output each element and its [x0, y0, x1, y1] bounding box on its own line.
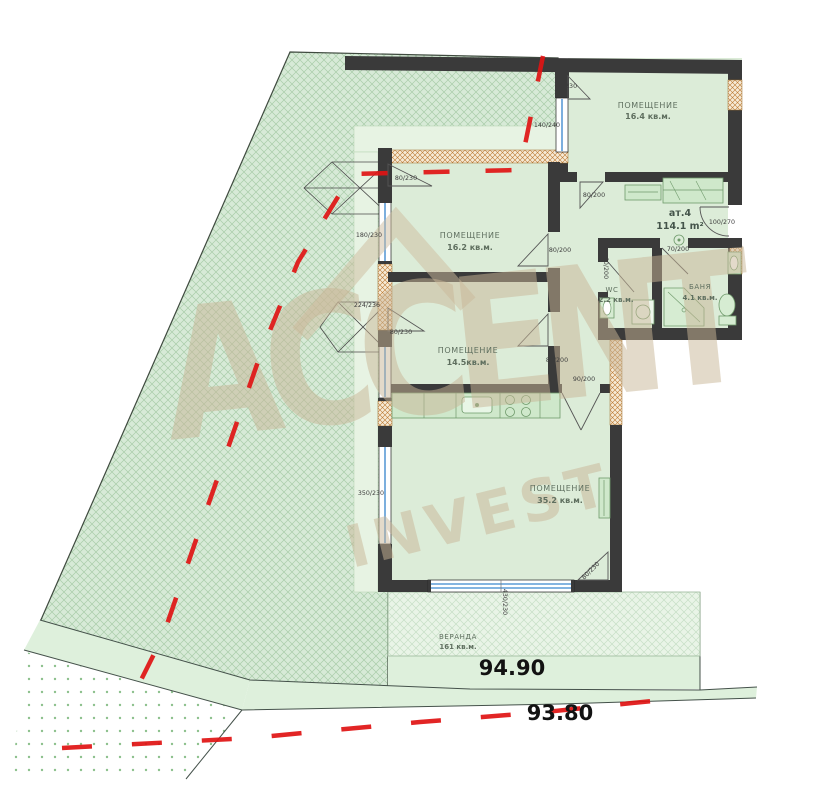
- level-94-90: 94.90: [479, 656, 545, 680]
- wardrobe: [663, 178, 723, 203]
- dim-entry-door: 100/270: [709, 219, 735, 226]
- svg-text:16.2 кв.м.: 16.2 кв.м.: [447, 243, 493, 252]
- dim-top-door: 80/230: [555, 83, 577, 90]
- dim-door-162: 80/200: [549, 247, 571, 254]
- svg-text:ПОМЕЩЕНИЕ: ПОМЕЩЕНИЕ: [438, 346, 499, 355]
- svg-text:4.1 кв.м.: 4.1 кв.м.: [682, 294, 717, 302]
- level-93-80: 93.80: [527, 701, 593, 725]
- svg-text:ПОМЕЩЕНИЕ: ПОМЕЩЕНИЕ: [618, 101, 679, 110]
- svg-text:16.4 кв.м.: 16.4 кв.м.: [625, 112, 671, 121]
- svg-text:WC: WC: [605, 286, 618, 294]
- svg-text:БАНЯ: БАНЯ: [689, 283, 711, 291]
- floor-plan-canvas: ACCENT INVEST ПОМЕЩЕНИЕ 16.4 кв.м. ПОМЕЩ…: [0, 0, 835, 800]
- radiator: [625, 185, 661, 200]
- svg-text:114.1 m²: 114.1 m²: [656, 221, 703, 232]
- dim-door-145: 80/200: [546, 357, 568, 364]
- dim-left-window-1: 180/230: [356, 232, 382, 239]
- svg-text:2.2 кв.м.: 2.2 кв.м.: [598, 296, 633, 304]
- dim-left-pier: 224/236: [354, 302, 380, 309]
- dim-bath-door: 70/200: [667, 246, 689, 253]
- svg-text:ПОМЕЩЕНИЕ: ПОМЕЩЕНИЕ: [440, 231, 501, 240]
- dim-annex1-door: 80/230: [395, 175, 417, 182]
- window-bottom: [428, 580, 574, 592]
- svg-text:161 кв.м.: 161 кв.м.: [439, 643, 476, 651]
- veranda: [388, 592, 700, 656]
- svg-text:ВЕРАНДА: ВЕРАНДА: [439, 633, 477, 641]
- svg-text:35.2 кв.м.: 35.2 кв.м.: [537, 496, 583, 505]
- dim-annex2-door: 80/230: [390, 329, 412, 336]
- dim-kitchen-pass: 90/200: [573, 376, 595, 383]
- dim-bottom-window: 430/230: [501, 589, 508, 615]
- dim-left-window-2: 350/230: [358, 490, 384, 497]
- dim-window-164: 140/240: [534, 122, 560, 129]
- svg-text:ПОМЕЩЕНИЕ: ПОМЕЩЕНИЕ: [530, 484, 591, 493]
- svg-text:14.5кв.м.: 14.5кв.м.: [447, 358, 490, 367]
- floor-plan-page: ACCENT INVEST ПОМЕЩЕНИЕ 16.4 кв.м. ПОМЕЩ…: [0, 0, 835, 800]
- dim-door-164: 80/200: [583, 192, 605, 199]
- dim-wc-door: 60/200: [602, 257, 609, 279]
- svg-text:ат.4: ат.4: [669, 208, 692, 219]
